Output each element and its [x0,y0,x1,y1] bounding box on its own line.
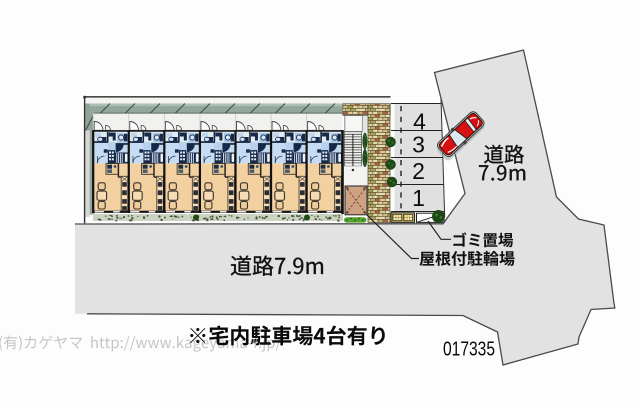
svg-text:1: 1 [412,185,425,211]
svg-text:017335: 017335 [443,338,495,360]
svg-text:3: 3 [412,131,425,157]
svg-text:2: 2 [412,158,425,184]
